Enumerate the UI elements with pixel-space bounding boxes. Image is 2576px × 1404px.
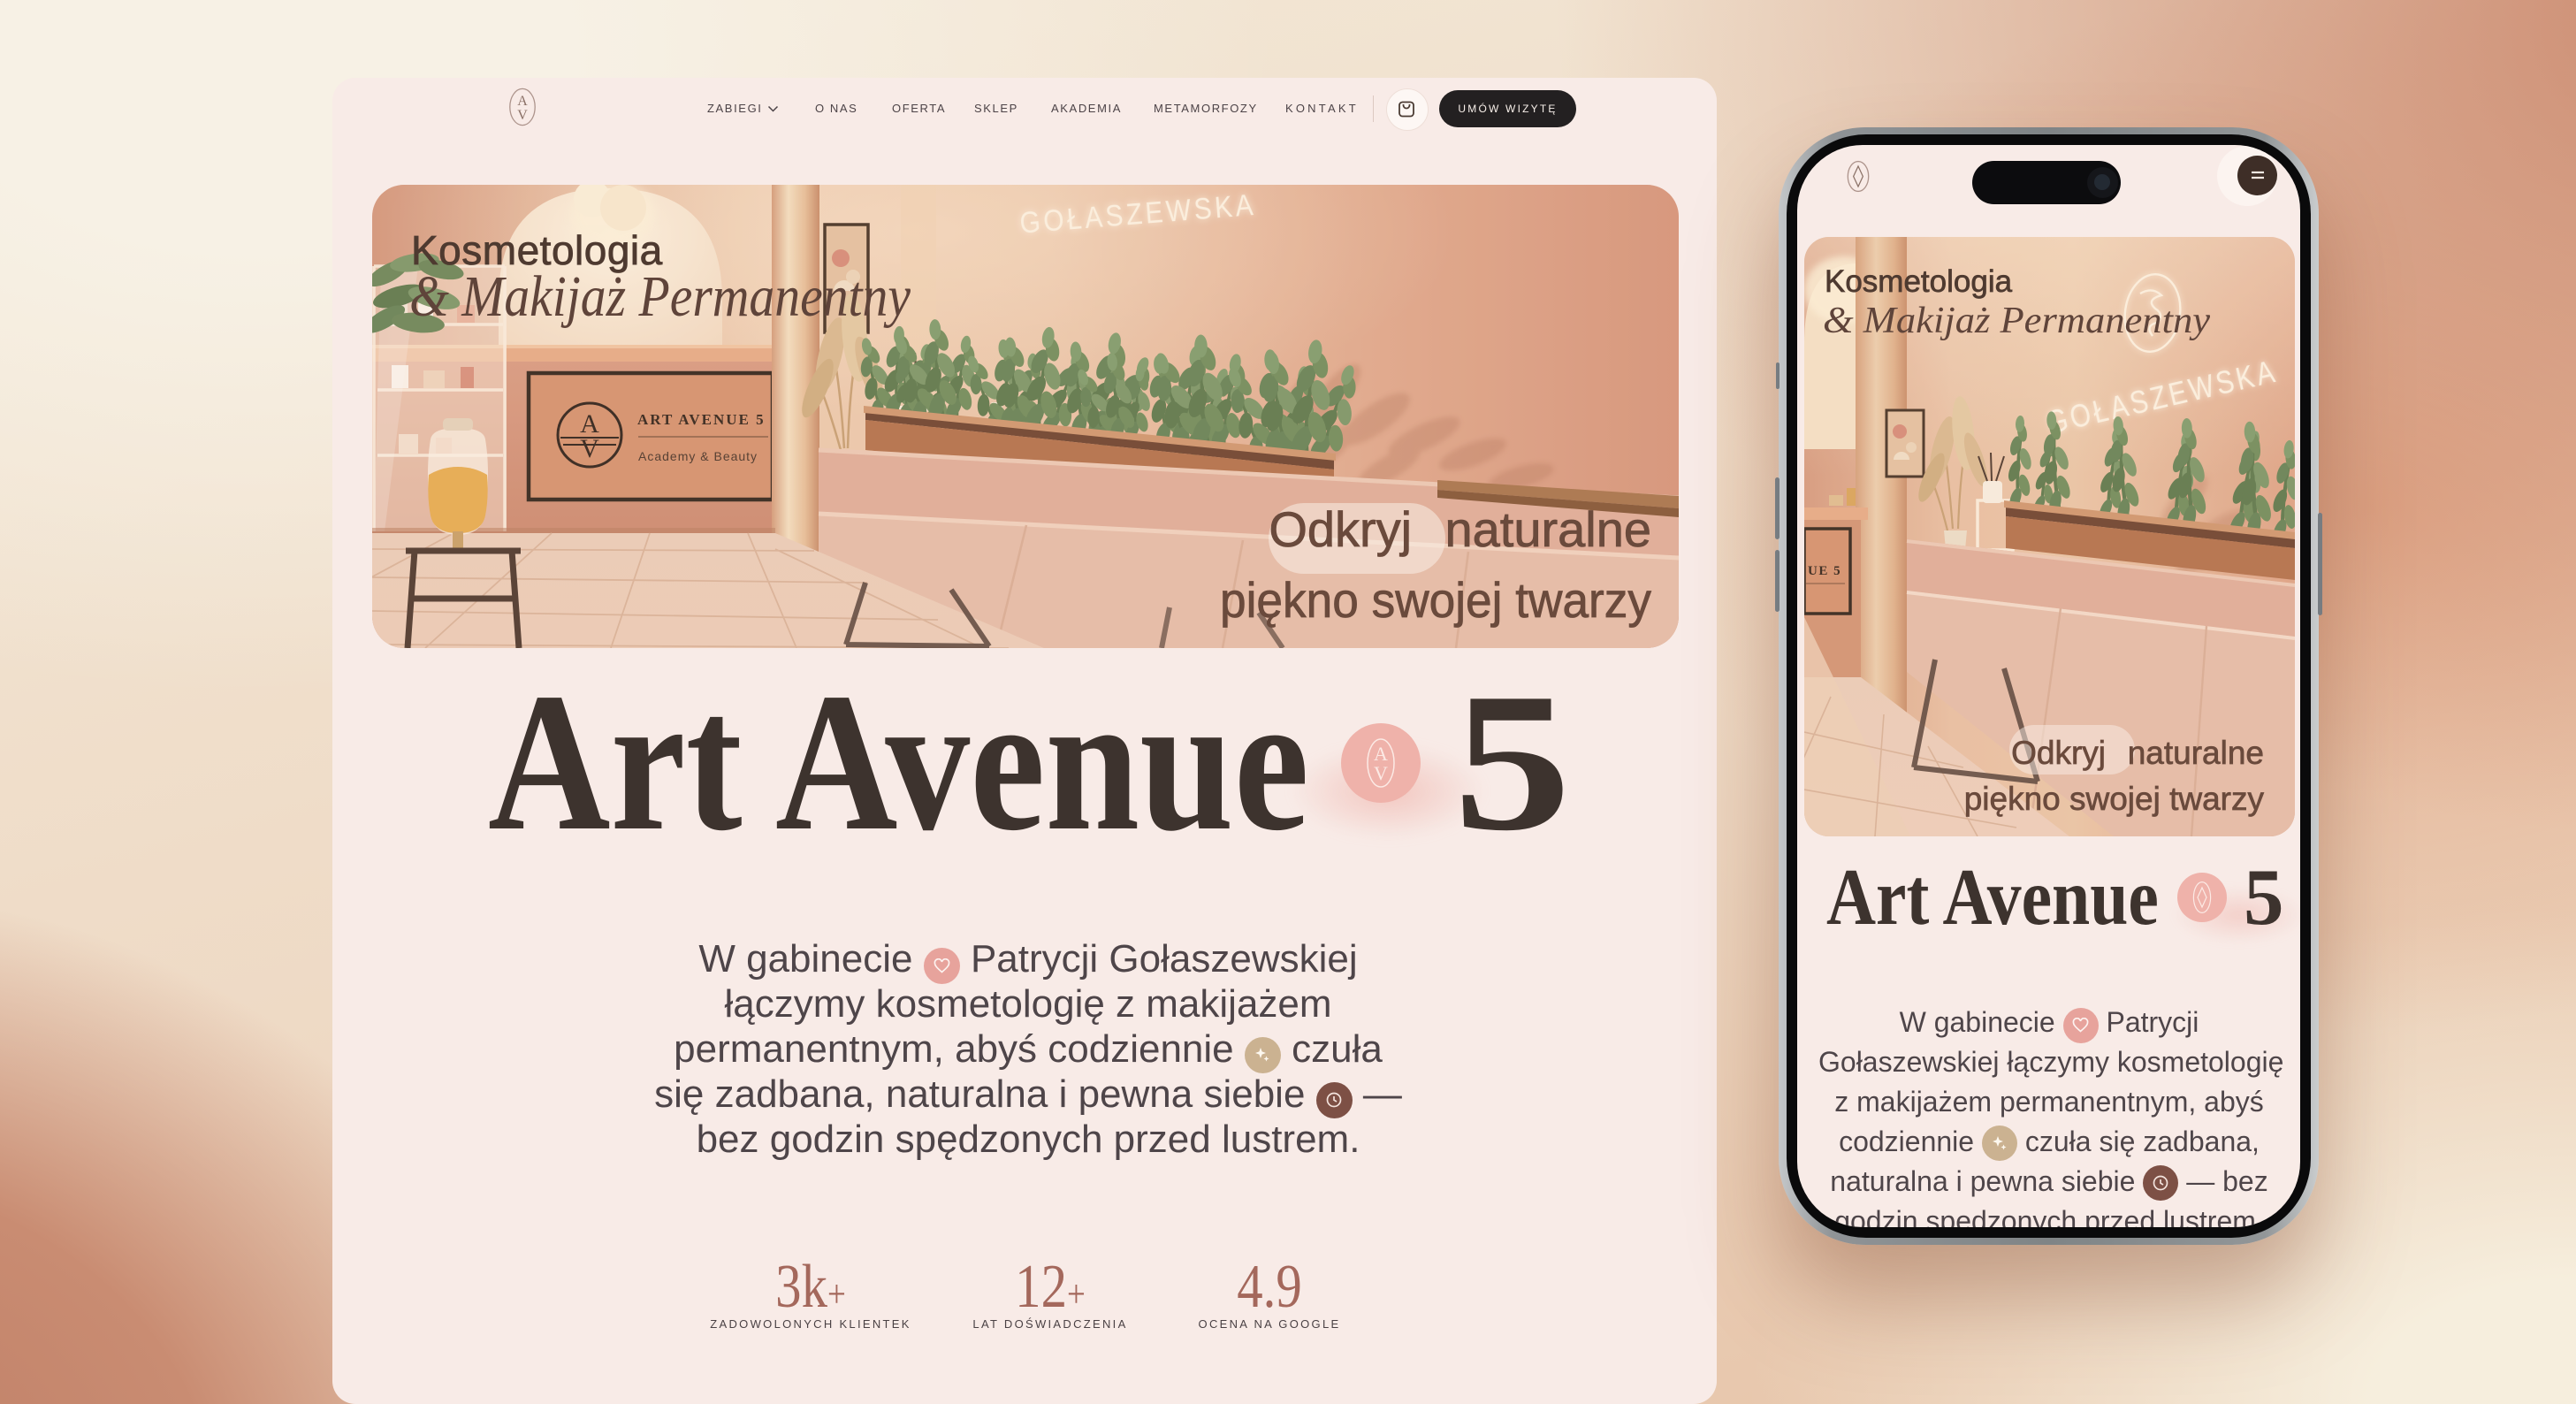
svg-text:piękno swojej twarzy: piękno swojej twarzy [1964,781,2265,817]
svg-text:Kosmetologia: Kosmetologia [1825,264,2013,299]
svg-text:Odkryj naturalne: Odkryj naturalne [2011,735,2264,771]
svg-text:& Makijaż Permanentny: & Makijaż Permanentny [1823,301,2210,341]
svg-text:V: V [1374,762,1388,784]
svg-text:piękno swojej twarzy: piękno swojej twarzy [1220,572,1651,628]
svg-text:A: A [517,94,528,109]
svg-text:V: V [517,108,528,123]
svg-text:Odkryj naturalne: Odkryj naturalne [1269,501,1651,557]
svg-text:& Makijaż Permanentny: & Makijaż Permanentny [409,264,911,329]
